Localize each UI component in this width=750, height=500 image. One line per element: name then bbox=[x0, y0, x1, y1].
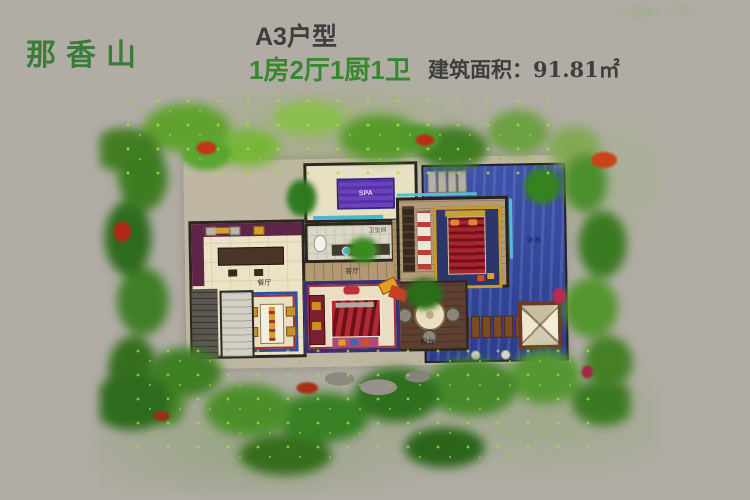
flower-accents bbox=[100, 88, 660, 488]
floor-plan-flyer: 那香山 A3户型 1房2厅1厨1卫 建筑面积：91.81㎡ SPA 卫生间 bbox=[0, 0, 750, 500]
project-name: 那香山 bbox=[26, 30, 146, 74]
room-layout-spec: 1房2厅1厨1卫 bbox=[249, 50, 411, 87]
paint-smudge bbox=[615, 3, 705, 21]
built-area-text: 建筑面积：91.81㎡ bbox=[428, 54, 620, 84]
unit-type-title: A3户型 bbox=[255, 17, 337, 53]
